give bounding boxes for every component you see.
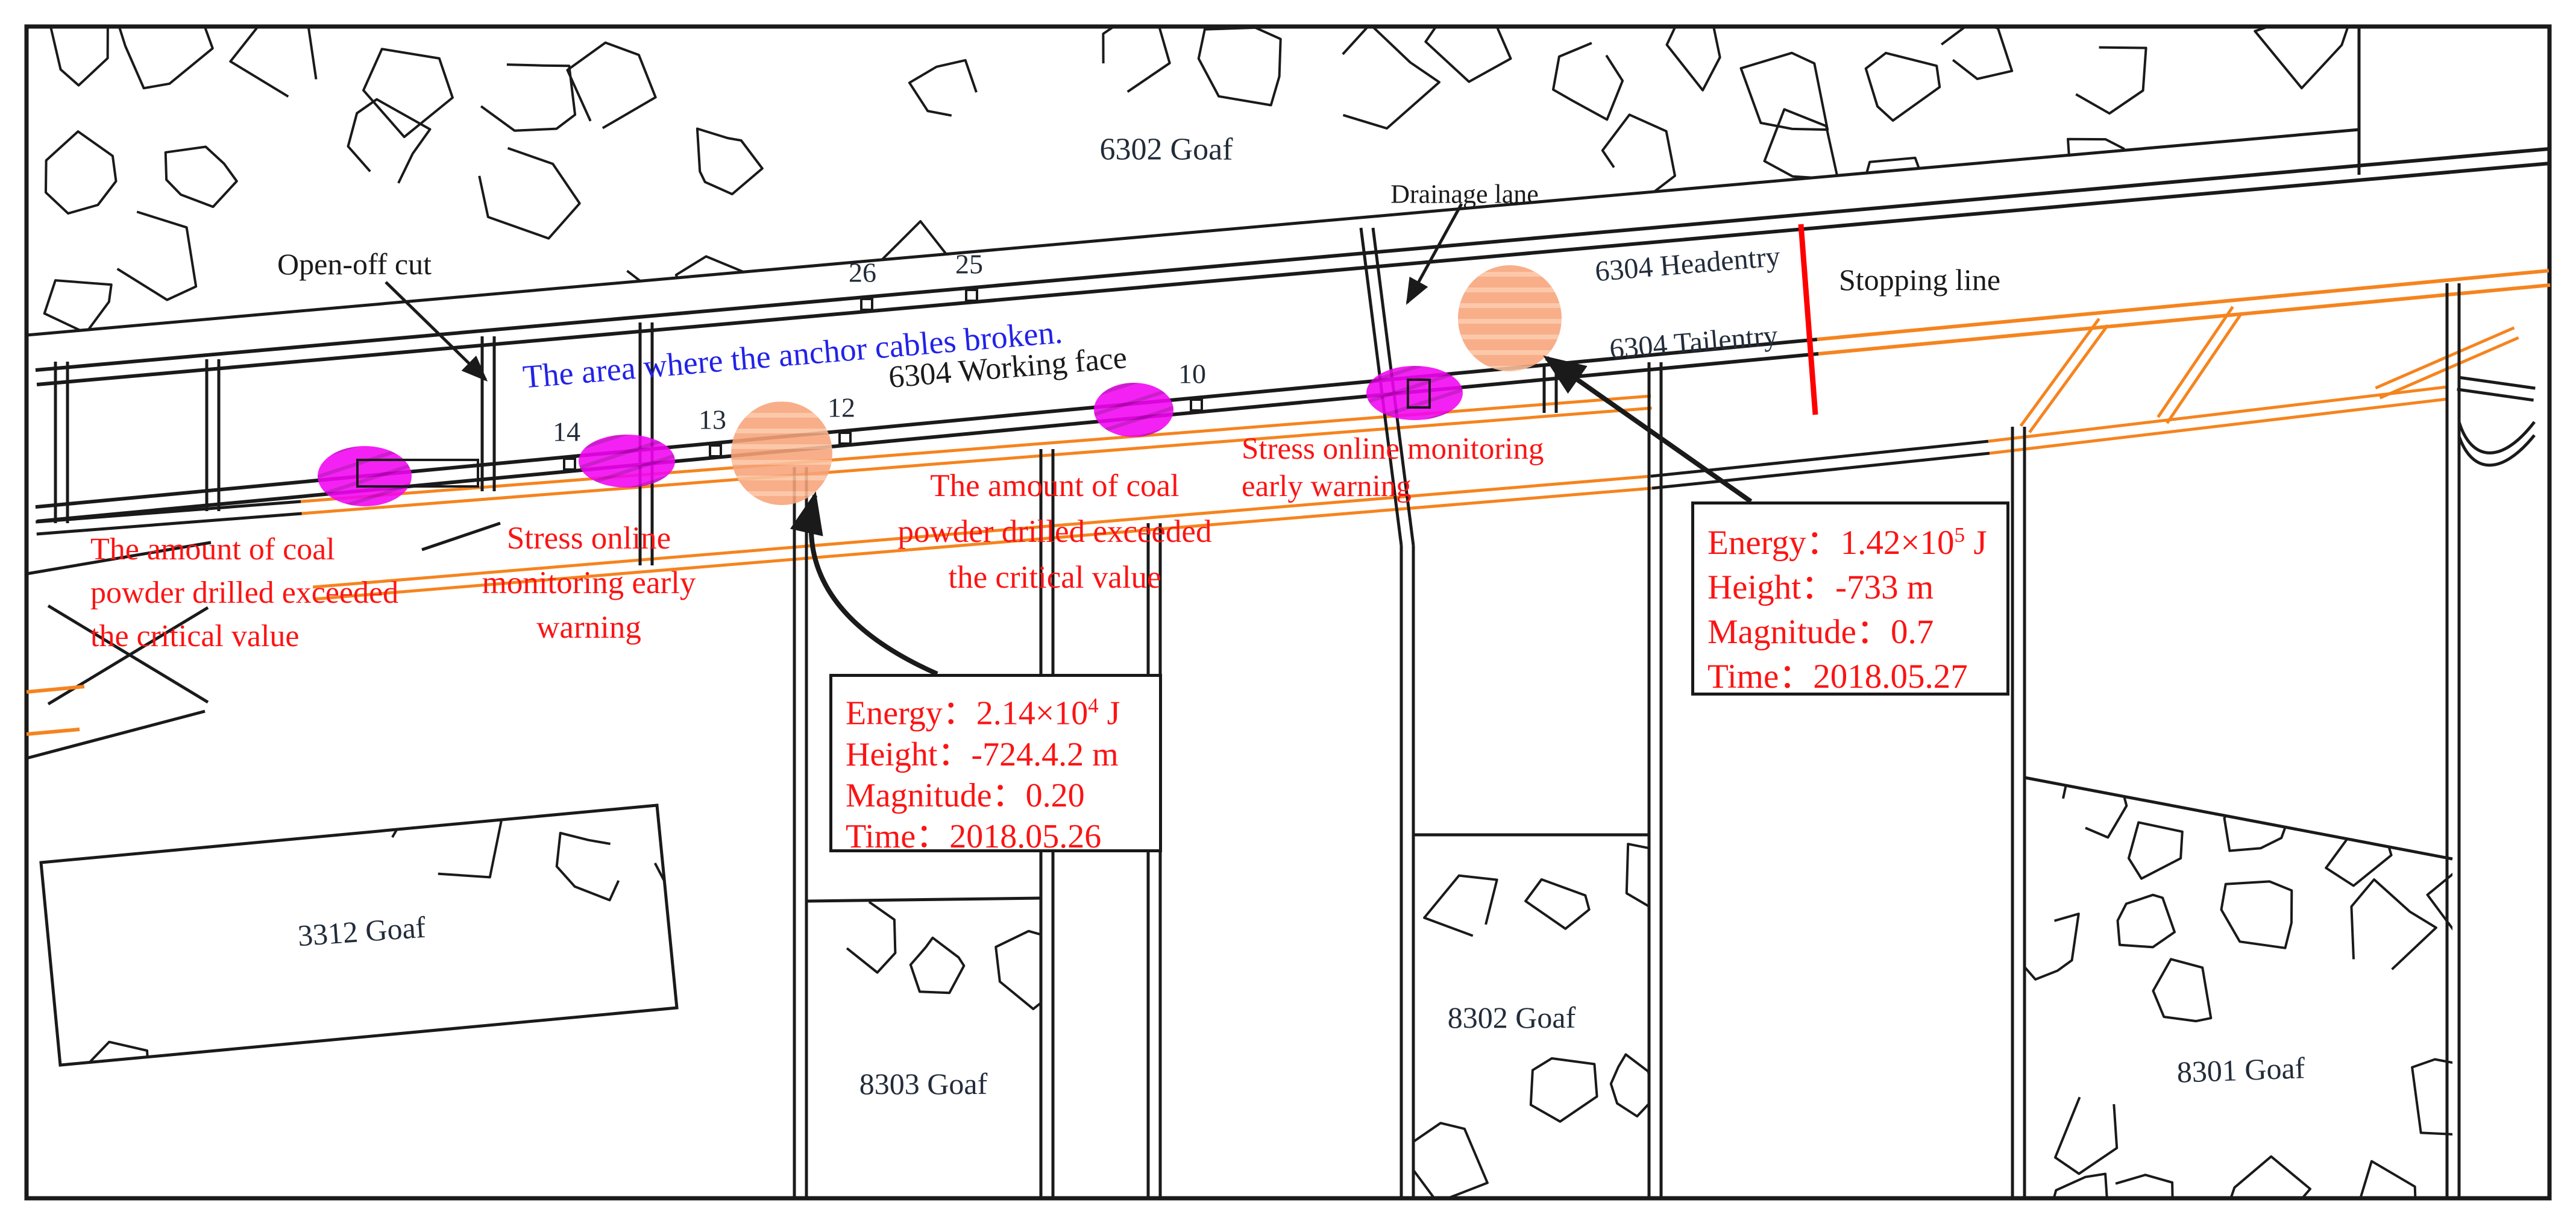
warning-line: The amount of coal bbox=[90, 528, 398, 571]
warning-line: the critical value bbox=[856, 555, 1254, 600]
station-13: 13 bbox=[699, 404, 726, 436]
stress-warning-right: Stress online monitoring early warning bbox=[1242, 430, 1544, 505]
drainage-lane-label: Drainage lane bbox=[1390, 179, 1539, 210]
event-height: Height：-733 m bbox=[1707, 565, 2000, 610]
warning-line: monitoring early bbox=[459, 561, 718, 605]
event-magnitude: Magnitude：0.7 bbox=[1707, 610, 2000, 655]
warning-line: Stress online monitoring bbox=[1242, 430, 1544, 468]
station-14: 14 bbox=[553, 416, 580, 448]
event-energy: Energy：2.14×104 J bbox=[846, 685, 1153, 734]
stress-warning-left: Stress online monitoring early warning bbox=[459, 516, 718, 650]
warning-line: the critical value bbox=[90, 615, 398, 658]
open-off-cut-label: Open-off cut bbox=[277, 247, 432, 281]
warning-line: Stress online bbox=[459, 516, 718, 561]
event-box-2: Energy：1.42×105 J Height：-733 m Magnitud… bbox=[1691, 501, 2009, 696]
goaf-label-6302: 6302 Goaf bbox=[1100, 132, 1233, 168]
goaf-label-8303: 8303 Goaf bbox=[859, 1066, 987, 1101]
station-25: 25 bbox=[955, 248, 983, 280]
goaf-label-8302: 8302 Goaf bbox=[1448, 1000, 1575, 1035]
warning-line: powder drilled exceeded bbox=[90, 571, 398, 615]
mine-plan-figure: 6302 Goaf 3312 Goaf 8303 Goaf 8302 Goaf … bbox=[0, 0, 2576, 1226]
coal-powder-warning-mid: The amount of coal powder drilled exceed… bbox=[856, 463, 1254, 600]
event-height: Height：-724.4.2 m bbox=[846, 734, 1153, 775]
event-box-1: Energy：2.14×104 J Height：-724.4.2 m Magn… bbox=[829, 674, 1162, 852]
station-26: 26 bbox=[849, 257, 876, 289]
stopping-line-label: Stopping line bbox=[1839, 262, 2000, 297]
warning-line: early warning bbox=[1242, 468, 1544, 505]
warning-line: warning bbox=[459, 605, 718, 650]
event-time: Time：2018.05.27 bbox=[1707, 655, 2000, 699]
warning-line: powder drilled exceeded bbox=[856, 509, 1254, 555]
event-energy: Energy：1.42×105 J bbox=[1707, 513, 2000, 565]
station-10: 10 bbox=[1178, 358, 1206, 390]
event-time: Time：2018.05.26 bbox=[846, 816, 1153, 857]
warning-line: The amount of coal bbox=[856, 463, 1254, 509]
coal-powder-warning-left: The amount of coal powder drilled exceed… bbox=[90, 528, 398, 658]
station-12: 12 bbox=[828, 392, 855, 424]
goaf-label-8301: 8301 Goaf bbox=[2176, 1050, 2305, 1089]
event-magnitude: Magnitude：0.20 bbox=[846, 775, 1153, 816]
